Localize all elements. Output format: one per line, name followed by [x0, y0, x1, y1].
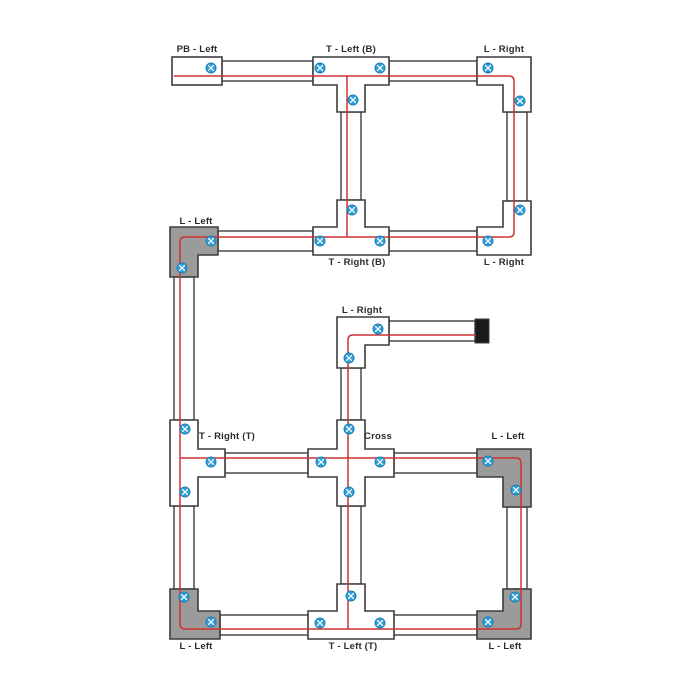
screw-terminal-icon — [315, 236, 325, 246]
screw-terminal-icon — [347, 205, 357, 215]
screw-terminal-icon — [483, 236, 493, 246]
track-segment — [174, 506, 194, 589]
conductor-lines — [174, 76, 521, 629]
screw-terminal-icon — [373, 324, 383, 334]
l-left-bottom-left-connector — [170, 589, 220, 639]
conductor-path-feed — [348, 335, 476, 629]
screw-terminal-icon — [375, 236, 385, 246]
track-connector-diagram: PB - Left T - Left (B) L - Right L - Lef… — [0, 0, 700, 700]
screw-terminal-icon — [483, 456, 493, 466]
label-t-left-t: T - Left (T) — [329, 641, 378, 652]
label-l-left-bottom-left: L - Left — [179, 641, 212, 652]
label-l-left-right: L - Left — [491, 431, 524, 442]
screw-terminal-icon — [206, 63, 216, 73]
track-segment — [218, 231, 313, 251]
track-segment — [174, 277, 194, 420]
screw-terminal-icon — [206, 236, 216, 246]
label-l-right-feed: L - Right — [342, 305, 382, 316]
screw-terminal-icon — [206, 457, 216, 467]
screw-terminal-icon — [510, 592, 520, 602]
screw-terminal-icon — [179, 592, 189, 602]
track-segment — [507, 112, 527, 201]
track-segment — [389, 61, 477, 81]
screw-terminal-icon — [206, 617, 216, 627]
label-t-left-b: T - Left (B) — [326, 44, 376, 55]
screw-terminal-icon — [316, 457, 326, 467]
track-segment — [389, 321, 475, 341]
label-t-right-b: T - Right (B) — [329, 257, 386, 268]
screw-terminal-icon — [515, 96, 525, 106]
track-segment — [225, 453, 308, 473]
track-segment — [389, 615, 477, 635]
screw-terminal-icon — [344, 487, 354, 497]
track-segment — [341, 506, 361, 584]
label-l-left-bottom-right: L - Left — [488, 641, 521, 652]
track-segment — [220, 615, 313, 635]
screw-terminal-icon — [515, 205, 525, 215]
track-segment — [389, 231, 477, 251]
screw-terminal-icon — [344, 353, 354, 363]
track-segment — [341, 112, 361, 200]
screw-terminal-icon — [348, 95, 358, 105]
label-t-right-t: T - Right (T) — [199, 431, 255, 442]
screw-terminal-icon — [180, 487, 190, 497]
screw-terminal-icon — [315, 618, 325, 628]
track-segment — [507, 507, 527, 589]
screw-terminal-icon — [483, 617, 493, 627]
track-layout-drawing — [0, 0, 700, 700]
l-left-bottom-right-connector — [477, 589, 531, 639]
label-cross: Cross — [364, 431, 392, 442]
label-pb-left: PB - Left — [177, 44, 218, 55]
screw-terminal-icon — [315, 63, 325, 73]
label-l-right-mid: L - Right — [484, 257, 524, 268]
screw-terminal-icon — [375, 618, 385, 628]
screw-terminal-icon — [483, 63, 493, 73]
track-segment — [394, 453, 477, 473]
screw-terminal-icon — [375, 63, 385, 73]
track-segment — [341, 368, 361, 420]
screw-terminal-icon — [346, 591, 356, 601]
track-end-cap — [475, 319, 489, 343]
label-l-left-mid: L - Left — [179, 216, 212, 227]
screw-terminal-icon — [344, 424, 354, 434]
track-segment — [222, 61, 313, 81]
screw-terminal-icon — [177, 263, 187, 273]
screw-terminal-icon — [180, 424, 190, 434]
label-l-right-top: L - Right — [484, 44, 524, 55]
screw-terminal-icon — [511, 485, 521, 495]
screw-terminal-icon — [375, 457, 385, 467]
